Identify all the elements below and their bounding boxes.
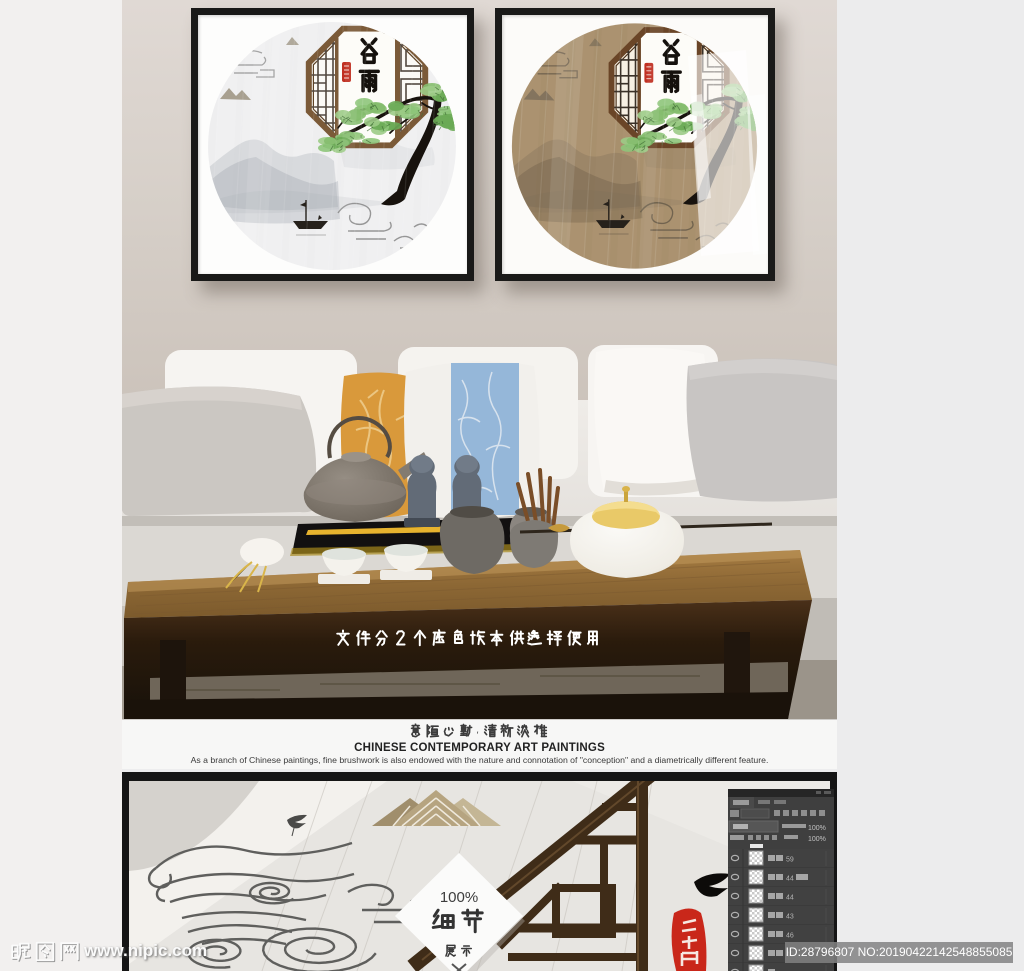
svg-text:59: 59 bbox=[786, 857, 794, 864]
svg-text:100%: 100% bbox=[440, 889, 478, 906]
svg-text:100%: 100% bbox=[808, 836, 826, 843]
svg-text:100%: 100% bbox=[808, 825, 826, 832]
svg-text:44: 44 bbox=[786, 895, 794, 902]
svg-text:46: 46 bbox=[786, 933, 794, 940]
svg-text:43: 43 bbox=[786, 914, 794, 921]
svg-text:44: 44 bbox=[786, 876, 794, 883]
